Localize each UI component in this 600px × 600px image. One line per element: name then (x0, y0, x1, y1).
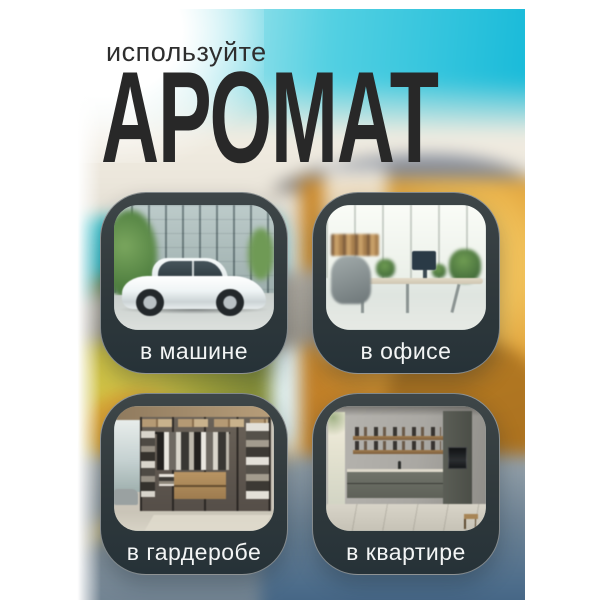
drawers (174, 472, 226, 499)
hanging-clothes (157, 432, 229, 470)
stool-leg (464, 519, 466, 529)
card-label-wardrobe: в гардеробе (101, 530, 287, 574)
office-scene (326, 205, 486, 330)
window-greenery (328, 412, 346, 440)
shelf-left (141, 431, 155, 498)
page-title: АРОМАТ (101, 52, 438, 182)
kitchen-scene (326, 406, 486, 531)
card-label-apartment: в квартире (313, 530, 499, 574)
white-fade-left (75, 9, 101, 600)
wardrobe-scene (114, 406, 274, 531)
car-wheel-front (136, 289, 163, 316)
shelf-dishes (355, 427, 441, 436)
tree-right (248, 228, 274, 281)
stool-leg (475, 519, 477, 529)
kitchen-photo (326, 406, 486, 531)
wardrobe-unit (140, 417, 271, 512)
monitor (412, 251, 436, 270)
bookshelf (331, 234, 379, 257)
car-photo (114, 205, 274, 330)
base-cabinets (347, 472, 443, 498)
office-photo (326, 205, 486, 330)
office-chair (331, 256, 371, 304)
shelf-dishes (355, 441, 441, 450)
wood-shelf (353, 436, 443, 440)
car-wheel-rear (216, 289, 243, 316)
built-in-oven (448, 447, 467, 468)
card-office: в офисе (312, 192, 500, 374)
rug (144, 515, 272, 531)
desk-leg (406, 284, 409, 313)
sofa (114, 489, 138, 505)
card-label-office: в офисе (313, 329, 499, 373)
usage-cards-grid: в машине в офисе (100, 192, 500, 575)
desk-leg (451, 284, 461, 313)
plant-small (376, 259, 395, 278)
shelf-right (246, 423, 270, 499)
wardrobe-photo (114, 406, 274, 531)
car-scene (114, 205, 274, 330)
promo-card: используйте АРОМАТ в маш (0, 0, 600, 600)
card-wardrobe: в гардеробе (100, 393, 288, 575)
wood-shelf (353, 450, 443, 454)
window (114, 420, 140, 493)
card-label-car: в машине (101, 329, 287, 373)
card-apartment: в квартире (312, 393, 500, 575)
floor (326, 504, 486, 532)
monitor-stand (423, 270, 427, 278)
card-car: в машине (100, 192, 288, 374)
